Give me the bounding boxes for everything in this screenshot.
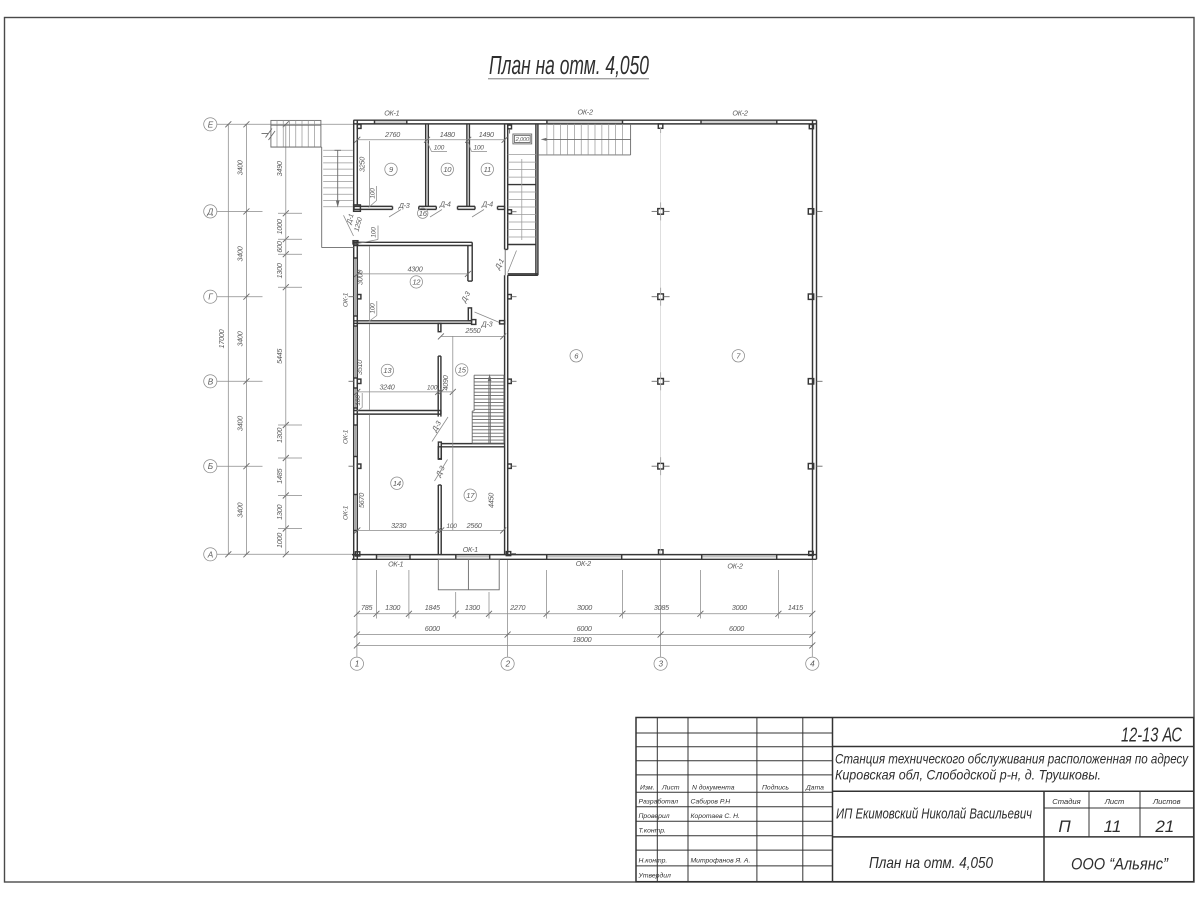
svg-text:100: 100: [434, 145, 445, 152]
svg-text:17: 17: [466, 491, 475, 500]
svg-text:600: 600: [275, 241, 284, 252]
svg-text:100: 100: [446, 523, 457, 530]
svg-text:Н.контр.: Н.контр.: [639, 858, 668, 865]
svg-text:3490: 3490: [275, 161, 284, 176]
svg-text:Д-3: Д-3: [398, 201, 410, 210]
svg-text:А: А: [207, 550, 214, 559]
svg-text:2560: 2560: [466, 521, 482, 530]
svg-text:100: 100: [371, 227, 378, 238]
svg-text:3400: 3400: [236, 331, 245, 346]
svg-text:2,000: 2,000: [515, 137, 530, 143]
svg-text:ОК-2: ОК-2: [732, 109, 747, 118]
svg-text:1300: 1300: [385, 603, 400, 612]
svg-text:Лист: Лист: [661, 785, 680, 792]
svg-text:3400: 3400: [236, 160, 245, 175]
svg-text:Д-4: Д-4: [439, 200, 451, 209]
svg-text:Стадия: Стадия: [1052, 797, 1080, 806]
svg-text:4: 4: [810, 660, 815, 669]
svg-text:Подпись: Подпись: [762, 784, 789, 792]
svg-text:ОК-1: ОК-1: [388, 560, 403, 569]
svg-text:1000: 1000: [275, 533, 284, 548]
svg-text:Лист: Лист: [1104, 797, 1125, 806]
svg-text:12: 12: [412, 278, 421, 287]
svg-text:14: 14: [393, 479, 401, 488]
svg-text:3000: 3000: [355, 270, 364, 285]
svg-text:1: 1: [355, 660, 359, 669]
svg-text:П: П: [1058, 817, 1071, 836]
svg-text:2760: 2760: [384, 130, 400, 139]
svg-text:3085: 3085: [654, 603, 670, 612]
svg-text:3400: 3400: [236, 246, 245, 261]
svg-text:15: 15: [458, 366, 467, 375]
svg-text:ОК-2: ОК-2: [577, 108, 592, 117]
svg-text:Утвердил: Утвердил: [638, 872, 672, 880]
svg-text:Изм.: Изм.: [640, 785, 655, 792]
svg-text:Коротаев С. Н.: Коротаев С. Н.: [691, 813, 741, 820]
svg-text:18000: 18000: [573, 635, 592, 644]
svg-text:1300: 1300: [465, 603, 480, 612]
svg-text:ОК-2: ОК-2: [727, 562, 742, 571]
svg-text:6000: 6000: [729, 624, 744, 633]
svg-text:10: 10: [443, 165, 452, 174]
svg-text:Дата: Дата: [805, 785, 824, 792]
svg-text:ОК-1: ОК-1: [463, 545, 478, 554]
svg-text:1000: 1000: [275, 219, 284, 234]
svg-text:3240: 3240: [380, 382, 395, 391]
svg-text:17000: 17000: [217, 329, 226, 348]
svg-text:4090: 4090: [441, 375, 450, 390]
svg-text:100: 100: [427, 384, 438, 391]
svg-text:6000: 6000: [425, 624, 440, 633]
svg-text:4450: 4450: [486, 493, 495, 508]
svg-text:3400: 3400: [236, 416, 245, 431]
svg-text:2270: 2270: [509, 603, 525, 612]
svg-text:ОК-1: ОК-1: [343, 505, 350, 520]
svg-text:ОК-2: ОК-2: [576, 559, 591, 568]
svg-text:11: 11: [484, 165, 491, 174]
svg-text:Б: Б: [208, 462, 214, 471]
svg-text:ОК-1: ОК-1: [384, 109, 399, 118]
svg-text:1845: 1845: [425, 603, 441, 612]
svg-text:В: В: [208, 377, 214, 386]
svg-text:1485: 1485: [275, 467, 284, 483]
svg-text:Д: Д: [207, 207, 214, 216]
svg-text:3: 3: [658, 660, 663, 669]
svg-text:16: 16: [419, 209, 428, 218]
svg-text:2: 2: [504, 660, 510, 669]
svg-text:3000: 3000: [577, 603, 592, 612]
svg-text:Кировская обл, Слободской р-н,: Кировская обл, Слободской р-н, д. Трушко…: [835, 768, 1101, 783]
svg-text:ИП Екимовский Николай Васильев: ИП Екимовский Николай Васильевич: [836, 806, 1032, 823]
svg-text:100: 100: [355, 395, 362, 406]
svg-text:Т.контр.: Т.контр.: [639, 828, 667, 835]
svg-text:Листов: Листов: [1152, 797, 1181, 806]
svg-text:1300: 1300: [275, 428, 284, 443]
svg-text:1480: 1480: [440, 130, 455, 139]
svg-text:12-13 АС: 12-13 АС: [1121, 724, 1182, 747]
svg-text:Д-3: Д-3: [481, 319, 493, 328]
svg-text:План на отм. 4,050: План на отм. 4,050: [869, 855, 993, 872]
svg-text:785: 785: [361, 603, 373, 612]
svg-text:4300: 4300: [408, 264, 423, 273]
svg-text:1415: 1415: [788, 603, 804, 612]
svg-text:6000: 6000: [577, 624, 592, 633]
svg-text:Проверил: Проверил: [639, 813, 670, 820]
svg-text:5445: 5445: [275, 348, 284, 364]
svg-text:11: 11: [1104, 817, 1122, 836]
svg-text:100: 100: [369, 188, 376, 199]
svg-text:ОК-1: ОК-1: [343, 292, 350, 307]
svg-text:100: 100: [370, 303, 377, 314]
svg-text:3000: 3000: [732, 603, 747, 612]
svg-text:ОК-1: ОК-1: [343, 429, 350, 444]
svg-text:Митрофанов Я. А.: Митрофанов Я. А.: [691, 858, 751, 865]
svg-text:3510: 3510: [355, 360, 364, 375]
svg-text:Сабиров Р.Н: Сабиров Р.Н: [691, 798, 731, 806]
svg-text:100: 100: [473, 145, 484, 152]
svg-text:13: 13: [383, 366, 392, 375]
svg-text:3400: 3400: [236, 502, 245, 517]
svg-text:N документа: N документа: [692, 784, 735, 792]
svg-text:1490: 1490: [479, 130, 494, 139]
svg-text:Д-4: Д-4: [481, 200, 493, 209]
svg-text:Разработал: Разработал: [639, 798, 679, 806]
svg-text:5670: 5670: [357, 493, 366, 508]
svg-text:План на отм. 4,050: План на отм. 4,050: [489, 52, 649, 80]
svg-text:3250: 3250: [357, 157, 366, 172]
svg-text:Станция технического обслужива: Станция технического обслуживания распол…: [835, 752, 1189, 767]
svg-text:21: 21: [1154, 817, 1174, 836]
svg-text:3230: 3230: [391, 521, 406, 530]
svg-text:1300: 1300: [275, 263, 284, 278]
svg-text:ООО “Альянс”: ООО “Альянс”: [1071, 855, 1169, 874]
svg-text:1300: 1300: [275, 504, 284, 519]
svg-text:Е: Е: [208, 120, 214, 129]
svg-text:2550: 2550: [464, 326, 480, 335]
